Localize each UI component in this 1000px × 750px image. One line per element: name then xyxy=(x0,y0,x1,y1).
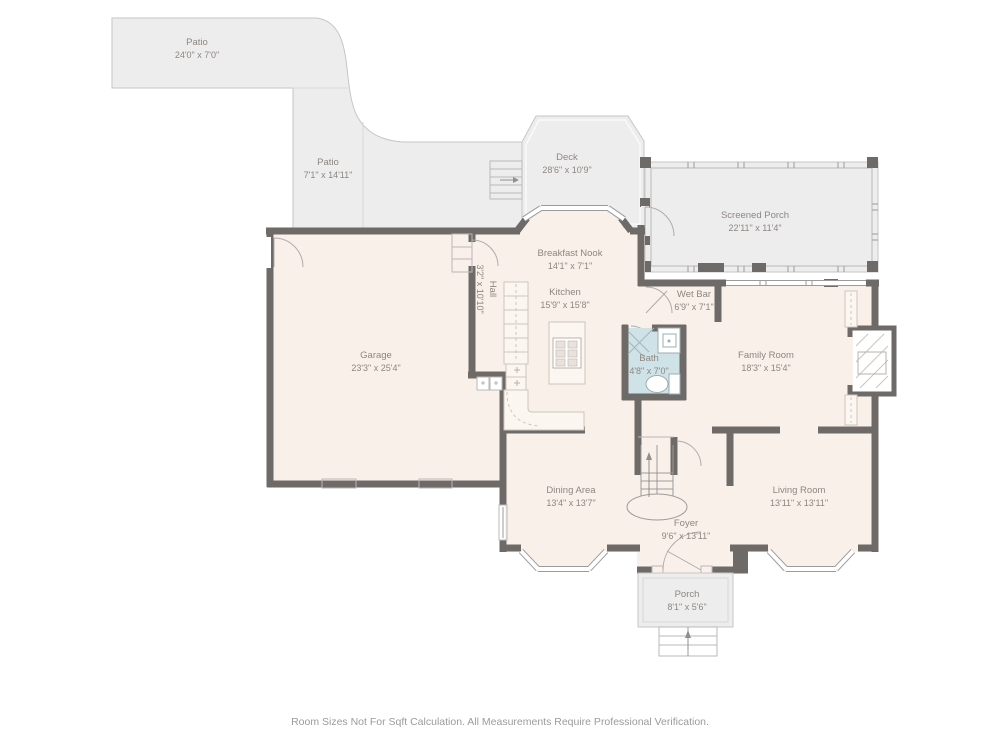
room-label-hall: Hall 3'2" x 10'10" xyxy=(474,264,498,313)
room-label-patio-side: Patio 7'1" x 14'11" xyxy=(304,157,353,181)
room-name: Breakfast Nook xyxy=(538,248,603,260)
room-name: Deck xyxy=(542,152,591,164)
room-dims: 13'11" x 13'11" xyxy=(770,497,828,509)
floor-plan-page: Patio 24'0" x 7'0" Patio 7'1" x 14'11" D… xyxy=(0,0,1000,750)
room-label-porch: Porch 8'1" x 5'6" xyxy=(667,589,706,613)
room-name: Screened Porch xyxy=(721,210,789,222)
toilet xyxy=(646,374,680,394)
room-label-dining-area: Dining Area 13'4" x 13'7" xyxy=(546,485,595,509)
room-label-patio-top: Patio 24'0" x 7'0" xyxy=(175,37,219,61)
fireplace xyxy=(847,328,894,394)
room-name: Living Room xyxy=(770,485,828,497)
room-name: Family Room xyxy=(738,350,794,362)
room-dims: 15'9" x 15'8" xyxy=(540,299,589,311)
room-dims: 22'11" x 11'4" xyxy=(721,222,789,234)
room-name: Hall xyxy=(486,264,498,313)
room-label-wet-bar: Wet Bar 6'9" x 7'1" xyxy=(674,289,713,313)
room-dims: 24'0" x 7'0" xyxy=(175,49,219,61)
room-name: Patio xyxy=(304,157,353,169)
room-name: Porch xyxy=(667,589,706,601)
room-name: Kitchen xyxy=(540,287,589,299)
room-name: Wet Bar xyxy=(674,289,713,301)
room-name: Dining Area xyxy=(546,485,595,497)
room-dims: 4'8" x 7'0" xyxy=(629,365,668,377)
room-dims: 9'6" x 13'11" xyxy=(662,530,711,542)
room-name: Patio xyxy=(175,37,219,49)
floor-plan-svg xyxy=(0,0,1000,750)
kitchen-island xyxy=(549,322,585,384)
room-label-breakfast-nook: Breakfast Nook 14'1" x 7'1" xyxy=(538,248,603,272)
room-dims: 14'1" x 7'1" xyxy=(538,260,603,272)
room-dims: 18'3" x 15'4" xyxy=(738,362,794,374)
room-label-living-room: Living Room 13'11" x 13'11" xyxy=(770,485,828,509)
room-name: Garage xyxy=(351,350,400,362)
patio-shapes xyxy=(112,18,522,228)
room-dims: 3'2" x 10'10" xyxy=(474,264,486,313)
room-dims: 13'4" x 13'7" xyxy=(546,497,595,509)
room-label-bath: Bath 4'8" x 7'0" xyxy=(629,353,668,377)
room-label-screened-porch: Screened Porch 22'11" x 11'4" xyxy=(721,210,789,234)
bath-sink xyxy=(658,328,680,353)
room-dims: 23'3" x 25'4" xyxy=(351,362,400,374)
room-dims: 6'9" x 7'1" xyxy=(674,301,713,313)
room-dims: 7'1" x 14'11" xyxy=(304,169,353,181)
room-label-foyer: Foyer 9'6" x 13'11" xyxy=(662,518,711,542)
room-dims: 8'1" x 5'6" xyxy=(667,601,706,613)
disclaimer-text: Room Sizes Not For Sqft Calculation. All… xyxy=(0,716,1000,728)
room-label-kitchen: Kitchen 15'9" x 15'8" xyxy=(540,287,589,311)
room-name: Foyer xyxy=(662,518,711,530)
room-label-deck: Deck 28'6" x 10'9" xyxy=(542,152,591,176)
room-label-family-room: Family Room 18'3" x 15'4" xyxy=(738,350,794,374)
front-steps xyxy=(659,627,717,656)
room-name: Bath xyxy=(629,353,668,365)
room-label-garage: Garage 23'3" x 25'4" xyxy=(351,350,400,374)
room-dims: 28'6" x 10'9" xyxy=(542,164,591,176)
